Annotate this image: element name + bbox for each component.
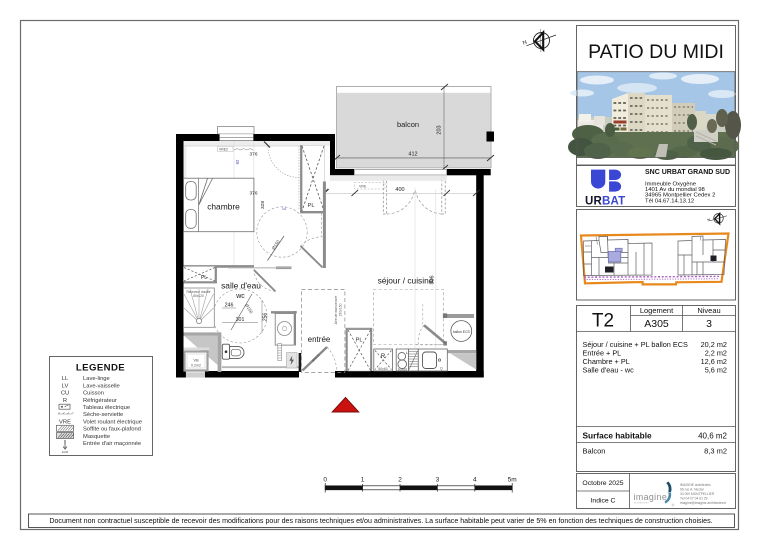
svg-text:412: 412	[408, 152, 417, 158]
svg-text:Masquette: Masquette	[83, 434, 110, 440]
svg-text:VRE2: VRE2	[219, 148, 228, 152]
svg-text:1: 1	[361, 477, 365, 484]
svg-text:256: 256	[263, 313, 269, 322]
svg-text:Indice C: Indice C	[591, 498, 616, 505]
svg-text:376: 376	[249, 152, 257, 158]
svg-text:imagine: imagine	[634, 492, 668, 502]
svg-text:entrée: entrée	[308, 335, 331, 344]
svg-text:0: 0	[323, 477, 327, 484]
svg-text:VRE: VRE	[59, 419, 71, 425]
svg-text:PL: PL	[201, 275, 208, 281]
svg-text:Tél 04 07 04 61 29: Tél 04 07 04 61 29	[680, 497, 708, 501]
svg-text:Salle d'eau - wc: Salle d'eau - wc	[583, 366, 635, 375]
svg-text:LL: LL	[62, 376, 69, 382]
svg-text:5,6 m2: 5,6 m2	[705, 366, 727, 375]
svg-text:4: 4	[473, 477, 477, 484]
svg-text:LV: LV	[62, 383, 69, 389]
svg-text:T2: T2	[592, 311, 614, 332]
svg-text:Niveau: Niveau	[697, 306, 720, 315]
svg-text:306: 306	[430, 275, 436, 284]
svg-text:ballon ECS: ballon ECS	[453, 330, 471, 334]
svg-text:150x150: 150x150	[339, 303, 343, 316]
svg-text:LEGENDE: LEGENDE	[76, 363, 125, 374]
svg-text:Octobre 2025: Octobre 2025	[582, 480, 623, 487]
svg-text:14: 14	[282, 207, 286, 211]
svg-text:Tél 04.67.14.13.12: Tél 04.67.14.13.12	[645, 198, 694, 204]
svg-text:Logement: Logement	[640, 306, 674, 315]
svg-text:VRE: VRE	[359, 185, 367, 189]
svg-text:0.2m2: 0.2m2	[191, 364, 201, 368]
svg-text:2: 2	[398, 477, 402, 484]
svg-text:VB: VB	[193, 358, 199, 363]
svg-text:Balcon: Balcon	[583, 447, 606, 456]
svg-text:203: 203	[437, 125, 443, 134]
svg-text:R: R	[63, 398, 67, 404]
svg-text:3: 3	[706, 318, 712, 330]
svg-text:66 rue A. Nectar: 66 rue A. Nectar	[680, 488, 705, 492]
svg-text:Q: Q	[440, 367, 443, 371]
svg-text:séjour / cuisine: séjour / cuisine	[378, 276, 434, 286]
svg-text:Réfrigérateur: Réfrigérateur	[83, 398, 117, 404]
svg-text:376: 376	[249, 190, 257, 196]
svg-text:400: 400	[395, 187, 404, 193]
svg-text:Entrée d'air maçonnée: Entrée d'air maçonnée	[83, 441, 141, 447]
svg-text:EAM: EAM	[62, 450, 69, 454]
svg-text:92: 92	[235, 159, 240, 164]
svg-text:Cuisson: Cuisson	[83, 391, 104, 397]
svg-text:Surface habitable: Surface habitable	[583, 431, 653, 441]
svg-text:Volet roulant électrique: Volet roulant électrique	[83, 419, 142, 425]
svg-text:5m: 5m	[508, 477, 517, 484]
svg-text:Aire de manoeuvre: Aire de manoeuvre	[334, 296, 338, 325]
svg-text:8,3 m2: 8,3 m2	[704, 447, 727, 456]
svg-text:architectes: architectes	[634, 502, 649, 505]
svg-text:PL: PL	[307, 203, 315, 209]
svg-text:Soffite ou faux-plafond: Soffite ou faux-plafond	[83, 427, 141, 433]
svg-text:Document non contractuel susce: Document non contractuel susceptible de …	[49, 517, 712, 525]
svg-text:IMAGINE architectes: IMAGINE architectes	[680, 483, 711, 487]
svg-text:Lave-linge: Lave-linge	[83, 376, 110, 382]
svg-text:40,6 m2: 40,6 m2	[698, 432, 727, 441]
svg-text:R: R	[381, 354, 386, 360]
svg-text:URBAT: URBAT	[585, 196, 625, 208]
svg-text:Sèche-serviette: Sèche-serviette	[83, 412, 123, 418]
svg-text:A305: A305	[644, 318, 669, 330]
svg-text:SNC URBAT GRAND SUD: SNC URBAT GRAND SUD	[645, 169, 730, 176]
svg-text:wc: wc	[235, 293, 245, 300]
svg-text:80x120: 80x120	[193, 294, 204, 298]
svg-text:CU: CU	[61, 391, 69, 397]
svg-text:chambre: chambre	[207, 202, 240, 212]
svg-text:34 000 MONTPELLIER: 34 000 MONTPELLIER	[680, 492, 715, 496]
svg-text:3: 3	[436, 477, 440, 484]
svg-text:Lave-vaisselle: Lave-vaisselle	[83, 383, 120, 389]
svg-text:Tableau électrique: Tableau électrique	[83, 405, 130, 411]
svg-text:PL: PL	[355, 338, 363, 344]
svg-text:balcon: balcon	[397, 120, 419, 129]
svg-text:60x60: 60x60	[378, 367, 387, 371]
svg-text:PATIO DU MIDI: PATIO DU MIDI	[588, 41, 724, 63]
svg-text:imagine@imagine-architectes.fr: imagine@imagine-architectes.fr	[680, 501, 727, 505]
svg-text:328: 328	[260, 201, 266, 209]
svg-text:246: 246	[225, 303, 234, 309]
svg-text:60x60: 60x60	[398, 368, 407, 372]
